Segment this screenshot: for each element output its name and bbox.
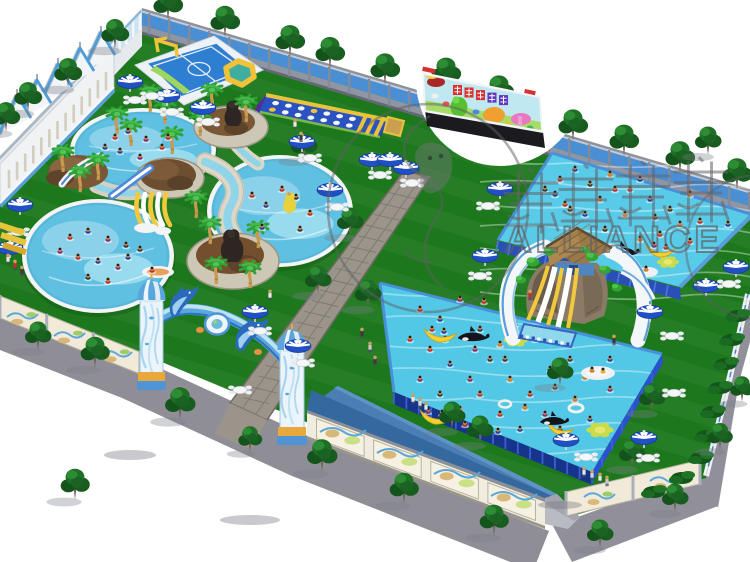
svg-text:ALLIANCE: ALLIANCE	[505, 219, 719, 260]
